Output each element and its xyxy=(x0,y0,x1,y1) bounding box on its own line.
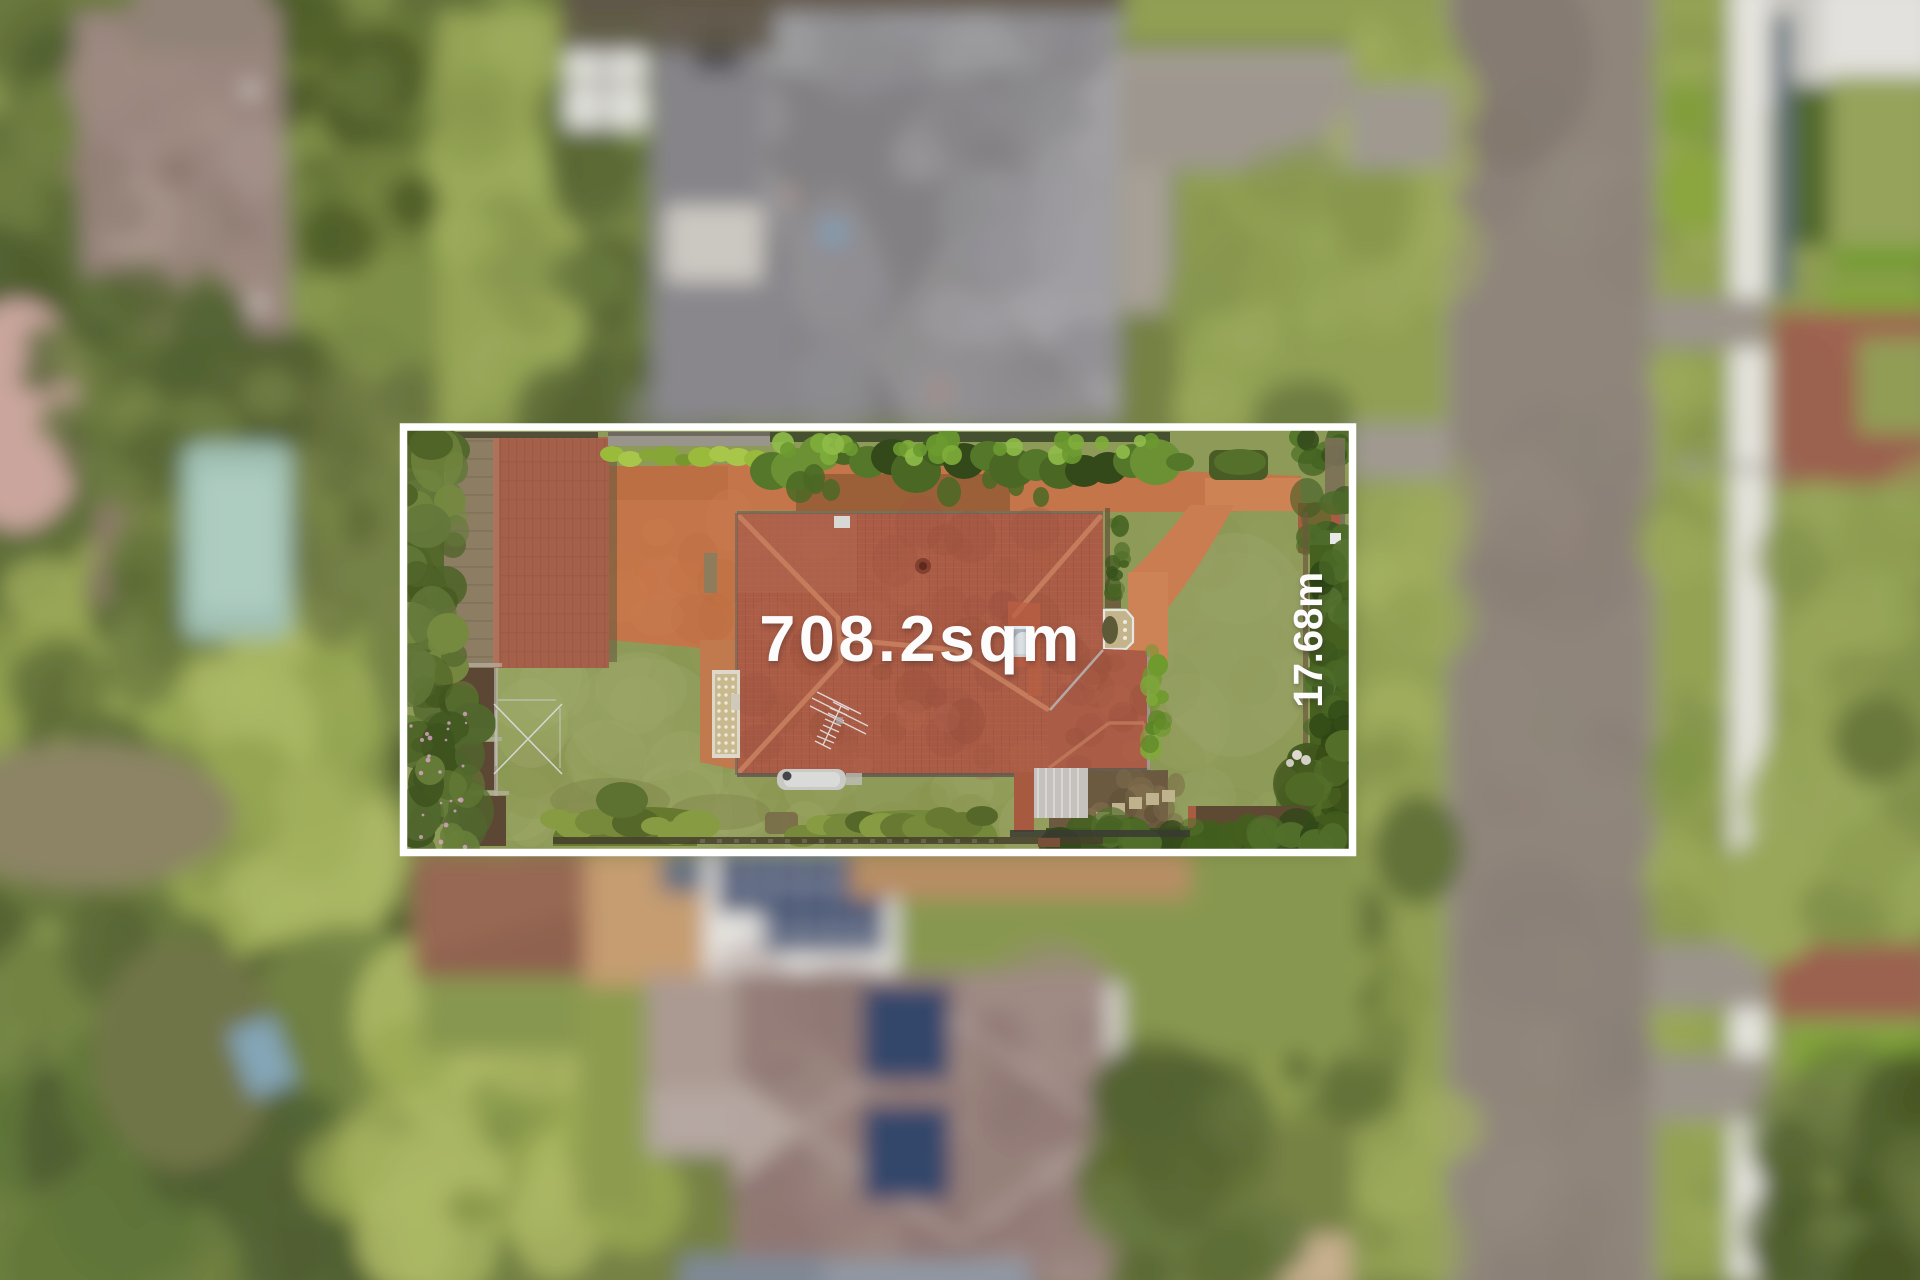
svg-text:708.2sqm: 708.2sqm xyxy=(759,602,1083,675)
svg-text:17.68m: 17.68m xyxy=(1285,572,1331,708)
